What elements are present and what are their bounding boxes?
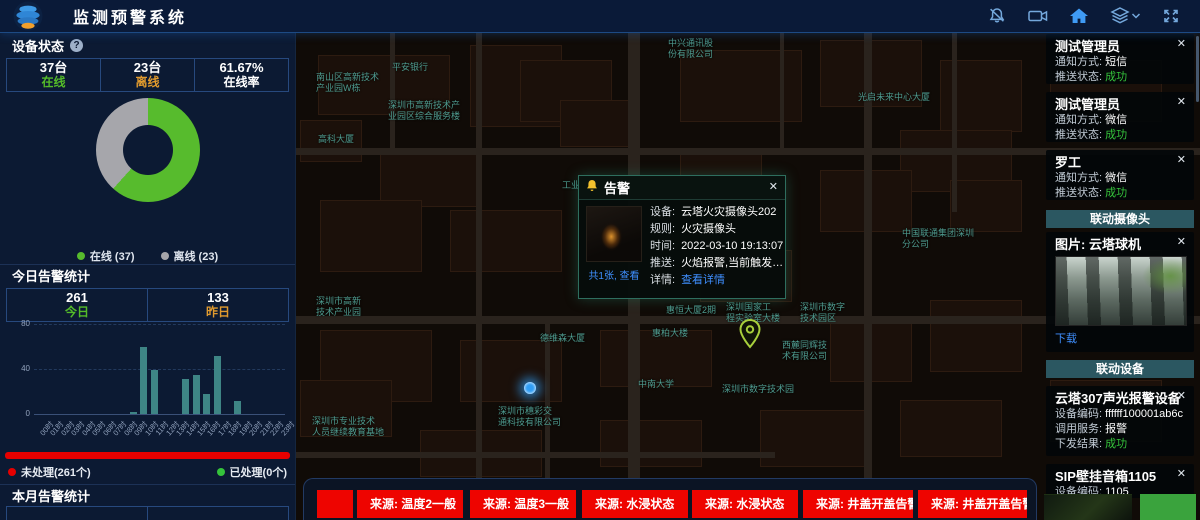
- popup-field-label: 时间:: [650, 240, 675, 253]
- card-field-row: 调用服务: 报警: [1055, 422, 1185, 437]
- bell-off-icon[interactable]: [984, 5, 1010, 27]
- stat-cell: 37台在线: [7, 59, 101, 91]
- map-building: [560, 100, 632, 147]
- map-building: [950, 180, 1022, 232]
- header-actions: [984, 5, 1184, 27]
- chevron-down-icon: [1131, 12, 1141, 20]
- close-icon[interactable]: ✕: [1177, 469, 1186, 480]
- device-status-stats: 37台在线23台离线61.67%在线率: [6, 58, 289, 92]
- map-building: [600, 420, 702, 467]
- map-label: 高科大厦: [318, 134, 354, 145]
- gridline: [34, 369, 285, 370]
- red-dot-icon: [8, 468, 16, 476]
- gridline: [34, 414, 285, 415]
- stat-cell: 133昨日: [148, 289, 288, 321]
- map-label: 惠柏大楼: [652, 328, 688, 339]
- map-label: 深圳市高新 技术产业园: [316, 296, 361, 318]
- unhandled-label: 未处理(261个): [21, 464, 91, 480]
- card-field-value: 成功: [1105, 71, 1127, 83]
- scrollbar[interactable]: [1196, 36, 1199, 102]
- close-icon[interactable]: ✕: [1177, 39, 1186, 50]
- card-field-label: 设备编码:: [1055, 408, 1105, 420]
- download-link[interactable]: 下载: [1055, 330, 1077, 346]
- stat-label: 昨日: [206, 306, 230, 319]
- card-field-value: 微信: [1105, 114, 1127, 126]
- map-label: 德维森大厦: [540, 333, 585, 344]
- app-logo: [13, 1, 43, 31]
- map-road: [295, 452, 775, 458]
- alert-chip[interactable]: [317, 490, 353, 518]
- bar: [214, 356, 221, 415]
- gridline: [34, 324, 285, 325]
- device-location-marker[interactable]: [524, 382, 536, 394]
- stat-value: 261: [66, 291, 88, 305]
- fullscreen-icon[interactable]: [1158, 5, 1184, 27]
- alarm-popup-titlebar: 告警 ✕: [579, 176, 785, 200]
- popup-field-row: 推送:火焰报警,当前触发值为...: [650, 257, 791, 270]
- card-field-value: 成功: [1105, 129, 1127, 141]
- home-icon[interactable]: [1066, 5, 1092, 27]
- map-label: 西麓同辉技 术有限公司: [782, 340, 827, 362]
- view-details-link[interactable]: 查看详情: [681, 274, 725, 287]
- card-field-label: 推送状态:: [1055, 187, 1105, 199]
- today-alarms-title: 今日告警统计: [12, 266, 90, 285]
- popup-field-row: 设备:云塔火灾摄像头202: [650, 206, 791, 219]
- today-alarms-bar-chart: 8040000时01时02时03时04时05时06时07时08时09时10时11…: [0, 322, 295, 472]
- popup-field-label: 推送:: [650, 257, 675, 270]
- card-title: SIP壁挂音箱1105: [1055, 468, 1185, 485]
- map-pin-icon[interactable]: [737, 318, 763, 350]
- popup-field-value: 火焰报警,当前触发值为...: [681, 257, 791, 270]
- alarm-popup-body: 共1张, 查看 设备:云塔火灾摄像头202规则:火灾摄像头时间:2022-03-…: [579, 200, 785, 295]
- camera-image-card: ✕ 图片: 云塔球机 下载: [1046, 232, 1194, 352]
- card-title: 云塔307声光报警设备: [1055, 390, 1185, 407]
- legend-dot-icon: [161, 252, 169, 260]
- stat-value: 133: [207, 291, 229, 305]
- card-field-row: 推送状态: 成功: [1055, 186, 1185, 201]
- popup-field-value: 云塔火灾摄像头202: [681, 206, 776, 219]
- device-status-donut-chart: [96, 98, 200, 202]
- stat-value: 61.67%: [219, 61, 263, 75]
- map-building: [900, 400, 1002, 457]
- map-label: 平安银行: [392, 62, 428, 73]
- popup-field-row: 规则:火灾摄像头: [650, 223, 791, 236]
- alert-chip[interactable]: 来源: 温度3一般: [470, 490, 576, 518]
- popup-field-label: 详情:: [650, 274, 675, 287]
- card-field-label: 下发结果:: [1055, 438, 1105, 450]
- notification-card: ✕测试管理员通知方式: 微信推送状态: 成功: [1046, 92, 1194, 142]
- stat-value: 37台: [40, 61, 67, 75]
- map-building: [760, 410, 872, 467]
- card-field-row: 下发结果: 成功: [1055, 437, 1185, 452]
- monitoring-dashboard: 中兴通讯股 份有限公司平安银行南山区高新技术 产业园W栋深圳市高新技术产 业园区…: [0, 0, 1200, 520]
- bar: [130, 412, 137, 414]
- legend-label: 离线 (23): [174, 248, 219, 264]
- alarm-snapshot[interactable]: [586, 206, 642, 262]
- alarm-popup: 告警 ✕ 共1张, 查看 设备:云塔火灾摄像头202规则:火灾摄像头时间:202…: [578, 175, 786, 299]
- map-road: [390, 32, 395, 150]
- section-month-alarms: 本月告警统计: [0, 484, 295, 506]
- handled-label: 已处理(0个): [230, 464, 287, 480]
- map-label: 深圳市专业技术 人员继续教育基地: [312, 416, 384, 438]
- map-road: [952, 32, 957, 212]
- linkage-camera-header[interactable]: 联动摄像头: [1046, 210, 1194, 228]
- alert-chip[interactable]: 来源: 井盖开盖告警: [803, 490, 913, 518]
- close-icon[interactable]: ✕: [1177, 155, 1186, 166]
- linkage-device-card: ✕云塔307声光报警设备设备编码: ffffff100001ab6c调用服务: …: [1046, 386, 1194, 456]
- card-field-value: 成功: [1105, 187, 1127, 199]
- card-field-label: 通知方式:: [1055, 56, 1105, 68]
- close-icon[interactable]: ✕: [1177, 97, 1186, 108]
- green-dot-icon: [217, 468, 225, 476]
- popup-field-value: 2022-03-10 19:13:07: [681, 240, 783, 253]
- section-device-status: 设备状态 ?: [0, 34, 295, 56]
- card-field-row: 推送状态: 成功: [1055, 128, 1185, 143]
- linkage-devices-header[interactable]: 联动设备: [1046, 360, 1194, 378]
- handled-legend-item: 已处理(0个): [217, 464, 287, 480]
- legend-dot-icon: [77, 252, 85, 260]
- legend-item: 在线 (37): [77, 248, 135, 264]
- bar: [140, 347, 147, 415]
- processing-legend: 未处理(261个) 已处理(0个): [0, 464, 295, 480]
- notification-card: ✕测试管理员通知方式: 短信推送状态: 成功: [1046, 34, 1194, 84]
- popup-field-row: 时间:2022-03-10 19:13:07: [650, 240, 791, 253]
- legend-label: 在线 (37): [90, 248, 135, 264]
- stat-cell: 261今日: [7, 289, 148, 321]
- map-building: [450, 210, 562, 272]
- stat-label: 在线率: [223, 76, 259, 89]
- device-status-title: 设备状态: [12, 36, 64, 55]
- map-road: [476, 32, 482, 482]
- card-field-label: 通知方式:: [1055, 172, 1105, 184]
- map-label: 中南大学: [638, 379, 674, 390]
- map-label: 惠恒大厦2期: [666, 305, 716, 316]
- stat-cell: 23台离线: [101, 59, 195, 91]
- card-field-row: 通知方式: 微信: [1055, 171, 1185, 186]
- stat-value: 23台: [134, 61, 161, 75]
- map-label: 南山区高新技术 产业园W栋: [316, 72, 379, 94]
- stat-label: 在线: [41, 76, 65, 89]
- bar: [193, 375, 200, 414]
- card-title: 测试管理员: [1055, 96, 1185, 113]
- map-label: 光启未来中心大厦: [858, 92, 930, 103]
- card-field-label: 调用服务:: [1055, 423, 1105, 435]
- view-images-link[interactable]: 共1张, 查看: [586, 267, 642, 282]
- unhandled-progress-bar: [5, 452, 290, 459]
- map-label: 中国联通集团深圳 分公司: [902, 228, 974, 250]
- popup-field-value: 火灾摄像头: [681, 223, 736, 236]
- stat-cell: 1146: [148, 507, 288, 520]
- bar: [182, 379, 189, 414]
- month-alarms-title: 本月告警统计: [12, 486, 90, 505]
- map-road: [780, 32, 784, 148]
- card-field-value: 报警: [1105, 423, 1127, 435]
- map-label: 深圳市高新技术产 业园区综合服务楼: [388, 100, 460, 122]
- map-label: 中兴通讯股 份有限公司: [668, 38, 713, 60]
- stat-label: 今日: [65, 306, 89, 319]
- page-title: 监测预警系统: [73, 4, 187, 28]
- unhandled-legend-item: 未处理(261个): [8, 464, 91, 480]
- popup-field-label: 设备:: [650, 206, 675, 219]
- bar: [234, 401, 241, 415]
- layers-icon[interactable]: [1107, 5, 1143, 27]
- card-title: 罗工: [1055, 154, 1185, 171]
- alarm-bell-icon: [586, 179, 598, 197]
- donut-legend: 在线 (37)离线 (23): [0, 248, 295, 264]
- close-icon[interactable]: ✕: [1177, 391, 1186, 402]
- card-field-row: 通知方式: 微信: [1055, 113, 1185, 128]
- stat-label: 离线: [135, 76, 159, 89]
- linkage-device-card: ✕SIP壁挂音箱1105设备编码: 1105: [1046, 464, 1194, 498]
- camera-card-title: 图片: 云塔球机: [1055, 236, 1185, 253]
- card-field-label: 推送状态:: [1055, 129, 1105, 141]
- close-icon[interactable]: ✕: [769, 182, 778, 193]
- bottom-thumbnails: [1044, 494, 1200, 520]
- stat-cell: 61.67%在线率: [195, 59, 288, 91]
- help-icon[interactable]: ?: [70, 39, 83, 52]
- card-field-value: 成功: [1105, 438, 1127, 450]
- alert-chip[interactable]: 来源: 温度2一般: [357, 490, 463, 518]
- camera-snapshot[interactable]: [1055, 256, 1187, 326]
- card-field-row: 设备编码: ffffff100001ab6c: [1055, 407, 1185, 422]
- bar: [203, 394, 210, 414]
- legend-item: 离线 (23): [161, 248, 219, 264]
- notification-card: ✕罗工通知方式: 微信推送状态: 成功: [1046, 150, 1194, 200]
- map-building: [930, 300, 1022, 372]
- map-road: [545, 324, 550, 484]
- app-header: 监测预警系统: [0, 0, 1200, 32]
- card-field-value: 微信: [1105, 172, 1127, 184]
- alert-chip[interactable]: 来源: 水浸状态: [582, 490, 688, 518]
- alert-chip[interactable]: 来源: 井盖开盖告警: [918, 490, 1027, 518]
- right-linkage-panel: ✕测试管理员通知方式: 短信推送状态: 成功✕测试管理员通知方式: 微信推送状态…: [1040, 32, 1200, 520]
- map-building: [320, 200, 422, 272]
- alarm-snapshot-block: 共1张, 查看: [586, 206, 642, 291]
- bar: [151, 370, 158, 414]
- alarm-popup-title: 告警: [604, 178, 630, 197]
- alert-chip[interactable]: 来源: 水浸状态: [692, 490, 798, 518]
- card-field-row: 推送状态: 成功: [1055, 70, 1185, 85]
- video-camera-icon[interactable]: [1025, 5, 1051, 27]
- close-icon[interactable]: ✕: [1177, 237, 1186, 248]
- y-tick-label: 80: [8, 319, 30, 328]
- stat-cell: 763: [7, 507, 148, 520]
- map-label: 深圳市数字技术园: [722, 384, 794, 395]
- card-title: 测试管理员: [1055, 38, 1185, 55]
- video-thumbnail[interactable]: [1044, 494, 1132, 520]
- card-field-label: 通知方式:: [1055, 114, 1105, 126]
- popup-field-row: 详情:查看详情: [650, 274, 791, 287]
- month-alarms-stats: 7631146: [6, 506, 289, 520]
- green-screen-thumbnail[interactable]: [1140, 494, 1196, 520]
- map-label: 深圳市穗彩交 通科技有限公司: [498, 406, 561, 428]
- card-field-value: 短信: [1105, 56, 1127, 68]
- card-field-label: 推送状态:: [1055, 71, 1105, 83]
- section-today-alarms: 今日告警统计: [0, 264, 295, 286]
- card-field-row: 通知方式: 短信: [1055, 55, 1185, 70]
- map-label: 深圳市数字 技术园区: [800, 302, 845, 324]
- y-tick-label: 40: [8, 364, 30, 373]
- card-field-value: ffffff100001ab6c: [1105, 408, 1183, 420]
- today-alarms-stats: 261今日133昨日: [6, 288, 289, 322]
- left-stats-panel: 设备状态 ? 37台在线23台离线61.67%在线率 在线 (37)离线 (23…: [0, 32, 296, 520]
- popup-field-label: 规则:: [650, 223, 675, 236]
- y-tick-label: 0: [8, 409, 30, 418]
- map-building: [380, 150, 477, 207]
